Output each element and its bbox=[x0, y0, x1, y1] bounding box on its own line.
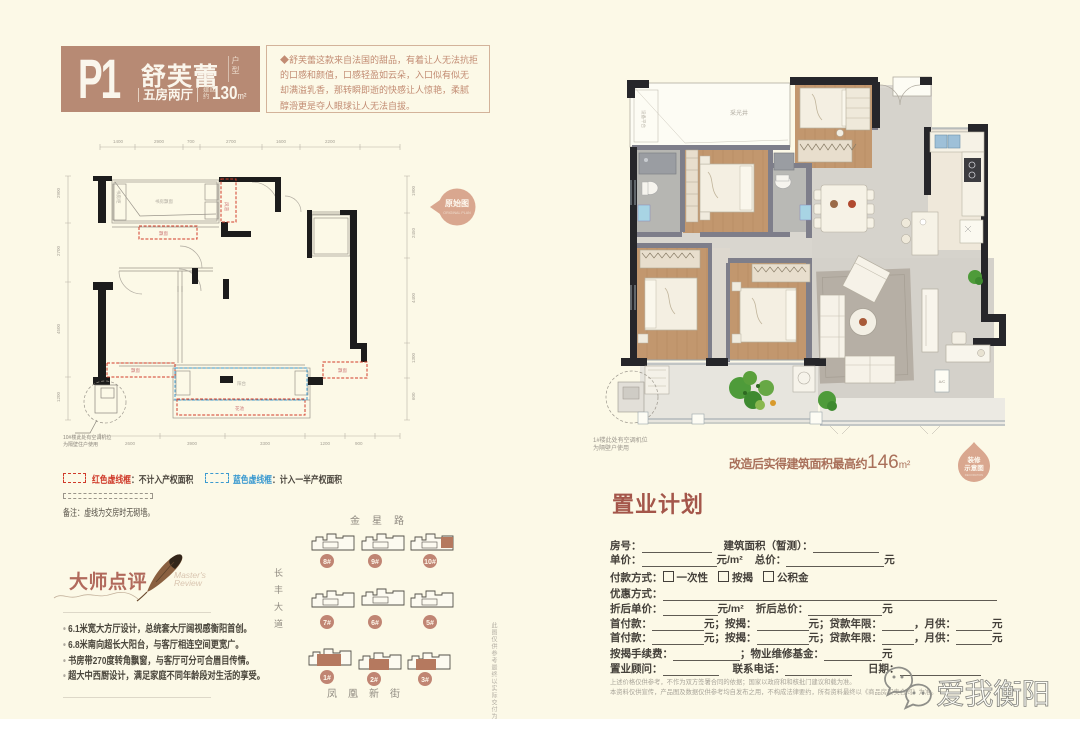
svg-text:为隔壁住户使用: 为隔壁住户使用 bbox=[63, 441, 98, 448]
svg-text:2#: 2# bbox=[370, 677, 378, 684]
svg-text:书房飘窗: 书房飘窗 bbox=[155, 198, 173, 205]
svg-text:A/C: A/C bbox=[939, 379, 946, 384]
svg-text:原始图: 原始图 bbox=[445, 198, 469, 208]
svg-text:1900: 1900 bbox=[411, 185, 416, 196]
svg-text:4400: 4400 bbox=[411, 292, 416, 303]
svg-text:示意图: 示意图 bbox=[964, 463, 984, 472]
svg-text:1300: 1300 bbox=[411, 352, 416, 363]
svg-text:1#: 1# bbox=[323, 675, 331, 682]
svg-text:8#: 8# bbox=[323, 559, 331, 566]
svg-text:2700: 2700 bbox=[226, 139, 237, 144]
svg-text:阳台: 阳台 bbox=[237, 380, 246, 387]
svg-text:7#: 7# bbox=[323, 620, 331, 627]
svg-text:700: 700 bbox=[187, 139, 195, 144]
svg-text:1600: 1600 bbox=[276, 139, 287, 144]
svg-text:3300: 3300 bbox=[260, 441, 271, 446]
svg-text:2600: 2600 bbox=[125, 441, 136, 446]
svg-text:风道: 风道 bbox=[223, 202, 230, 211]
svg-text:9#: 9# bbox=[371, 559, 379, 566]
svg-text:书房柜: 书房柜 bbox=[115, 190, 122, 204]
svg-text:3900: 3900 bbox=[187, 441, 198, 446]
svg-text:900: 900 bbox=[355, 441, 363, 446]
svg-text:采光井: 采光井 bbox=[730, 109, 748, 117]
svg-text:2200: 2200 bbox=[325, 139, 336, 144]
svg-text:1200: 1200 bbox=[320, 441, 331, 446]
svg-text:2700: 2700 bbox=[56, 245, 61, 256]
svg-text:DECORATION: DECORATION bbox=[965, 473, 983, 477]
svg-text:2900: 2900 bbox=[56, 187, 61, 198]
svg-text:5#: 5# bbox=[426, 620, 434, 627]
svg-text:10#: 10# bbox=[424, 559, 436, 566]
svg-text:6#: 6# bbox=[371, 620, 379, 627]
svg-text:1200: 1200 bbox=[56, 391, 61, 402]
svg-text:飘窗: 飘窗 bbox=[131, 367, 140, 374]
svg-text:10#楼此处有空调机位: 10#楼此处有空调机位 bbox=[63, 434, 111, 441]
svg-text:花池: 花池 bbox=[235, 405, 244, 412]
svg-text:2450: 2450 bbox=[411, 227, 416, 238]
svg-text:ORIGINAL PLAN: ORIGINAL PLAN bbox=[443, 211, 471, 215]
svg-text:飘窗: 飘窗 bbox=[338, 367, 347, 374]
svg-text:600: 600 bbox=[411, 392, 416, 400]
svg-text:飘窗: 飘窗 bbox=[159, 230, 168, 237]
svg-text:2900: 2900 bbox=[154, 139, 165, 144]
svg-text:装修: 装修 bbox=[967, 455, 982, 464]
svg-text:4500: 4500 bbox=[56, 323, 61, 334]
svg-text:设备平台: 设备平台 bbox=[640, 110, 647, 128]
svg-text:3#: 3# bbox=[421, 677, 429, 684]
svg-text:1400: 1400 bbox=[113, 139, 124, 144]
